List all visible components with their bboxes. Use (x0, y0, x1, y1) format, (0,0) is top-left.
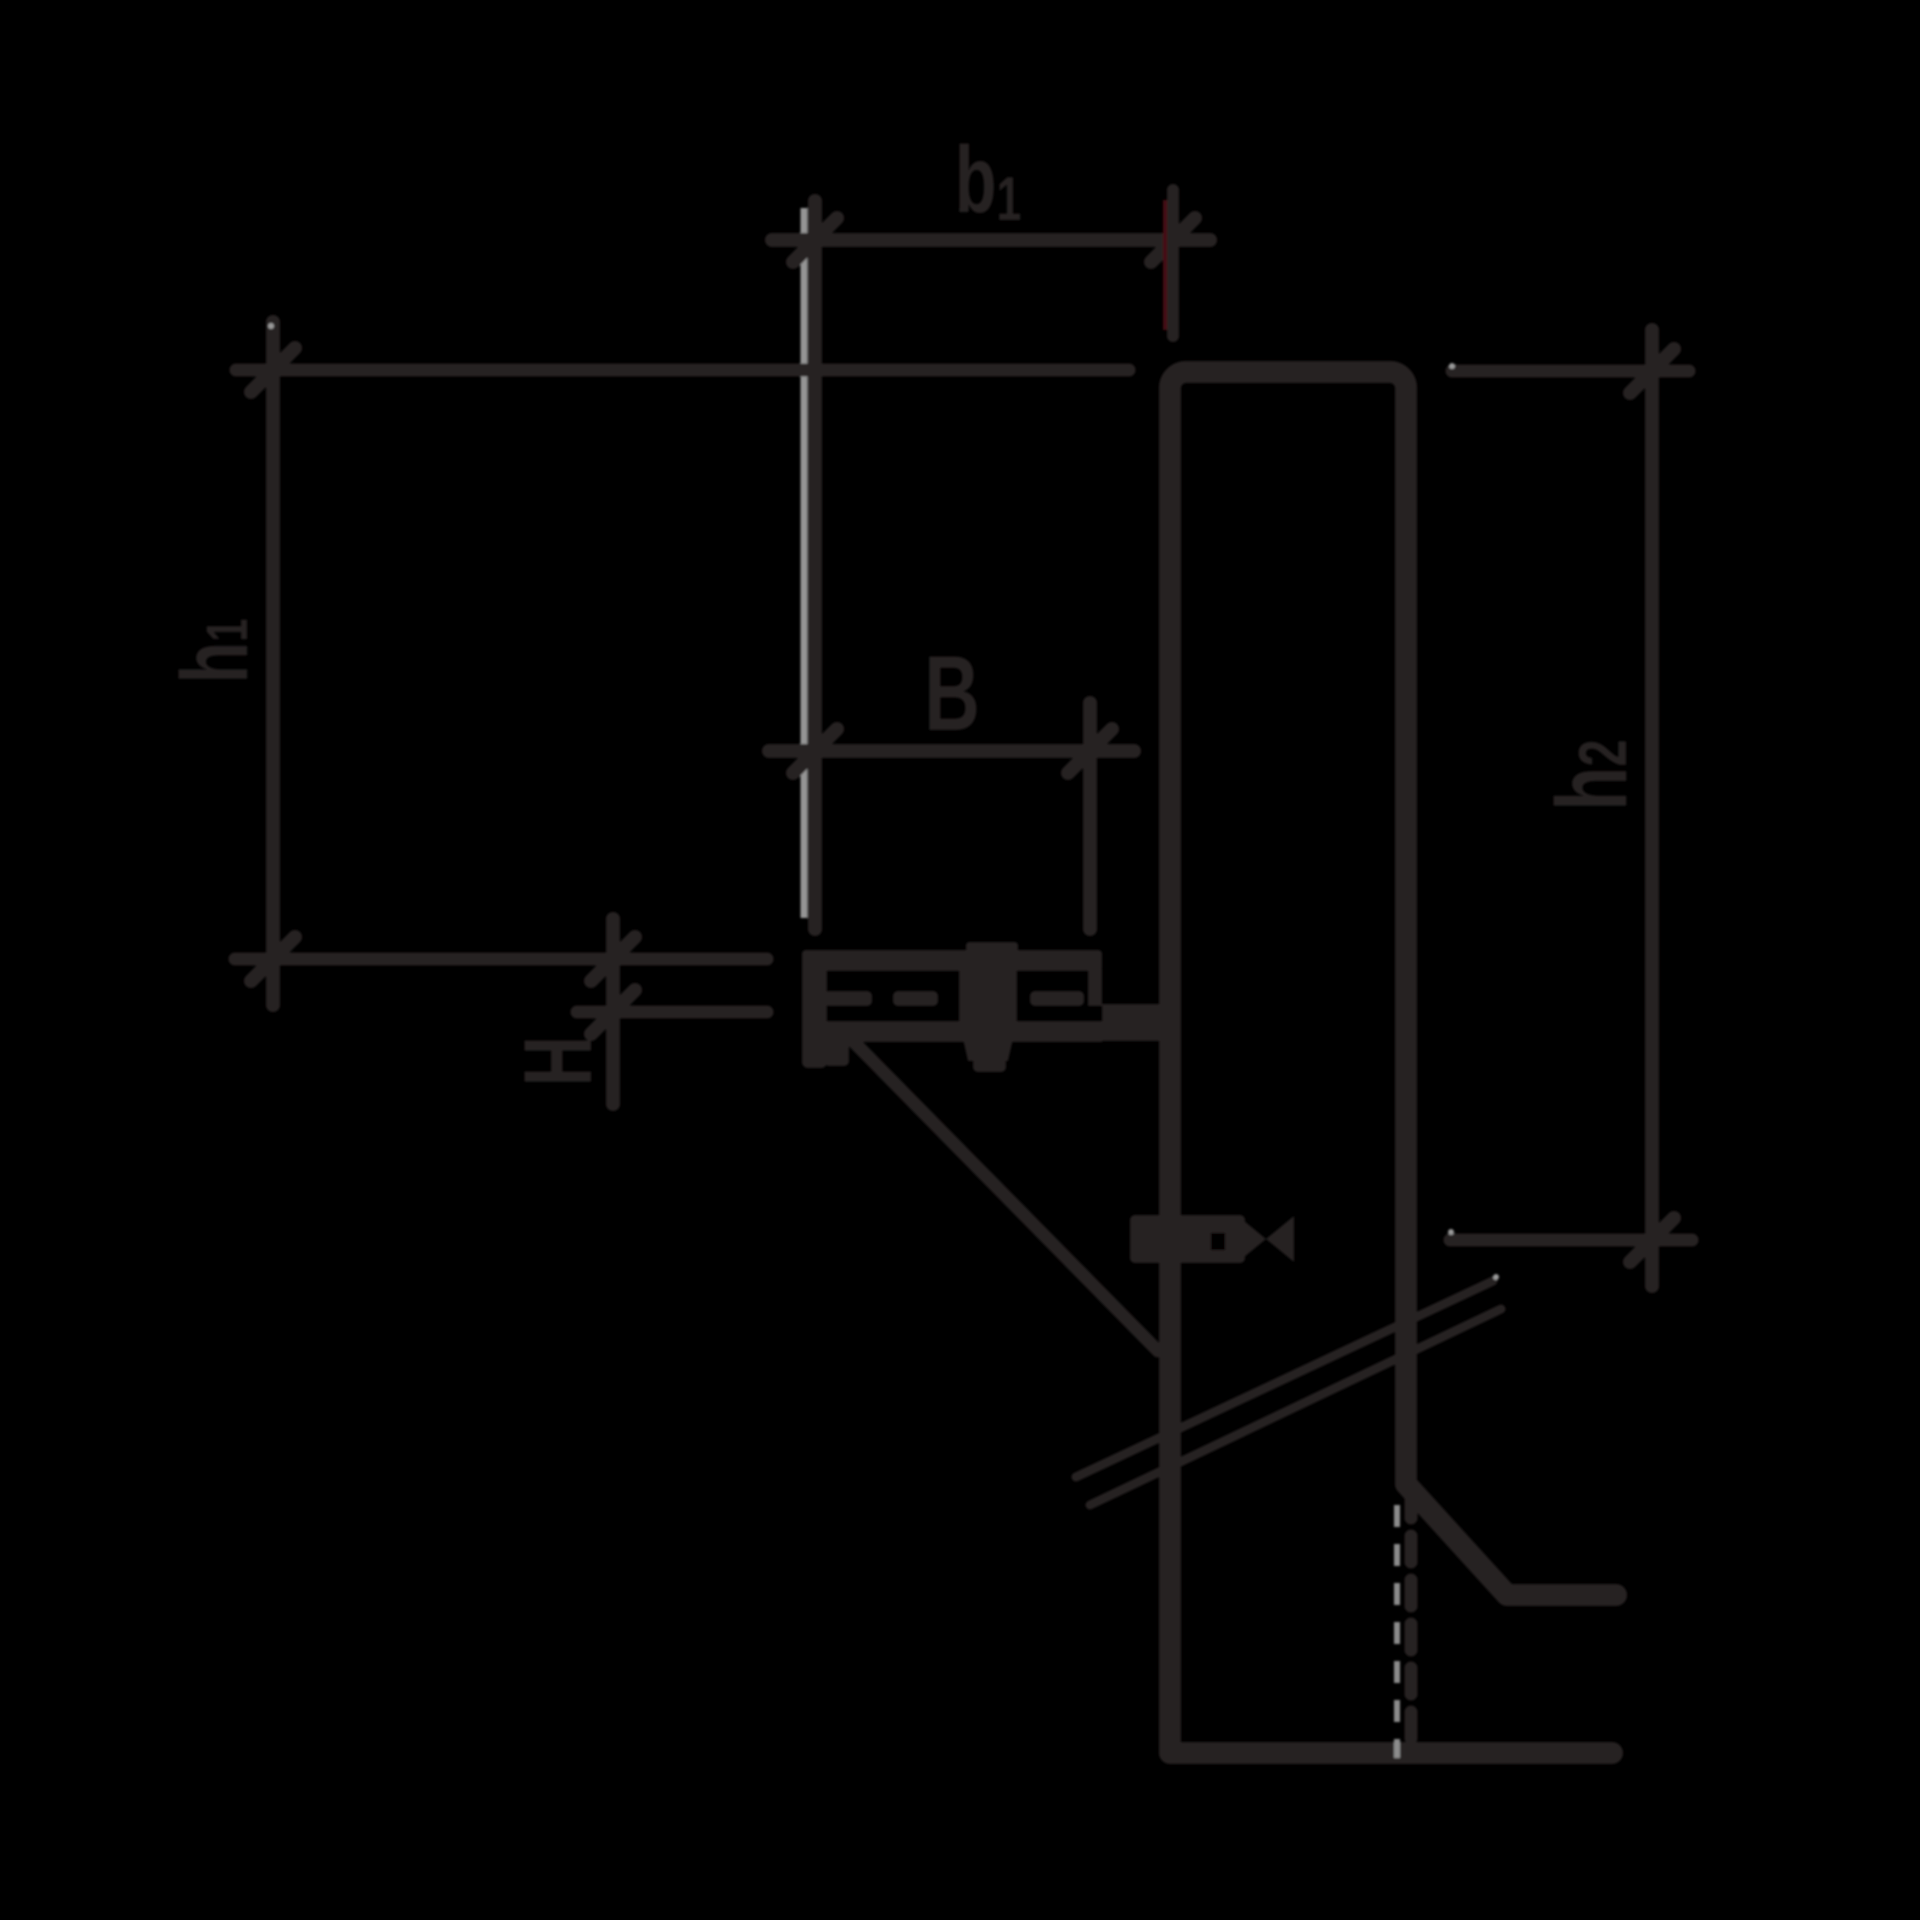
svg-text:B: B (924, 634, 980, 753)
svg-text:H: H (503, 1036, 612, 1086)
